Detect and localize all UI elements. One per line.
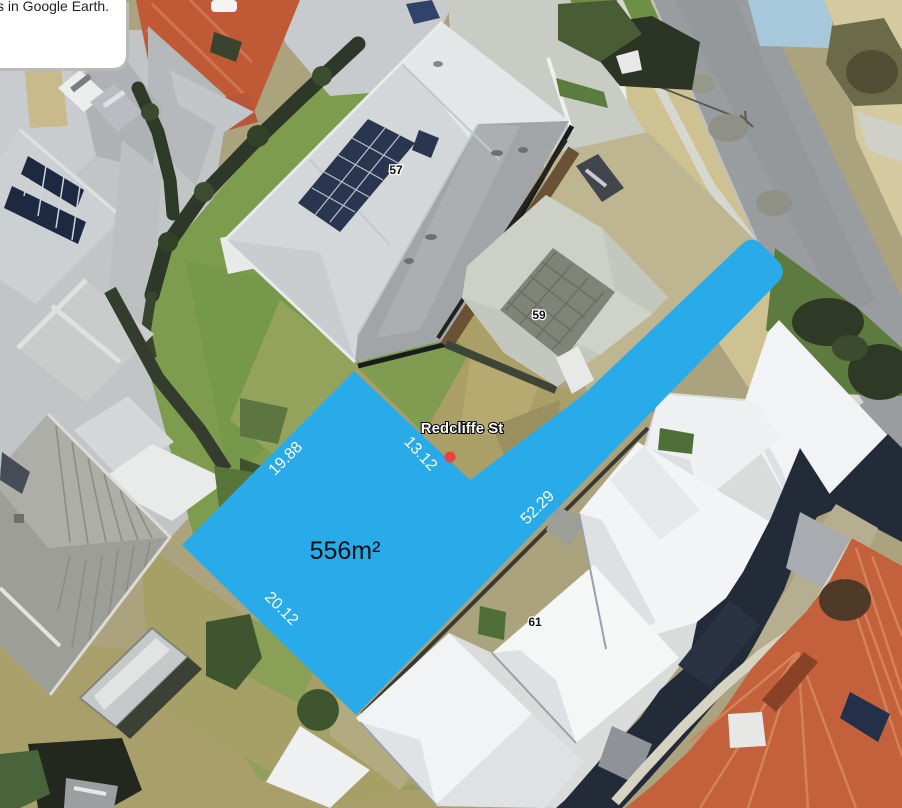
svg-text:556m²: 556m² <box>310 537 381 565</box>
svg-text:Redcliffe St: Redcliffe St <box>421 420 504 437</box>
svg-text:59: 59 <box>532 308 546 322</box>
svg-text:61: 61 <box>528 615 542 629</box>
svg-text:57: 57 <box>389 163 403 177</box>
svg-text:s in Google Earth.: s in Google Earth. <box>0 0 109 14</box>
